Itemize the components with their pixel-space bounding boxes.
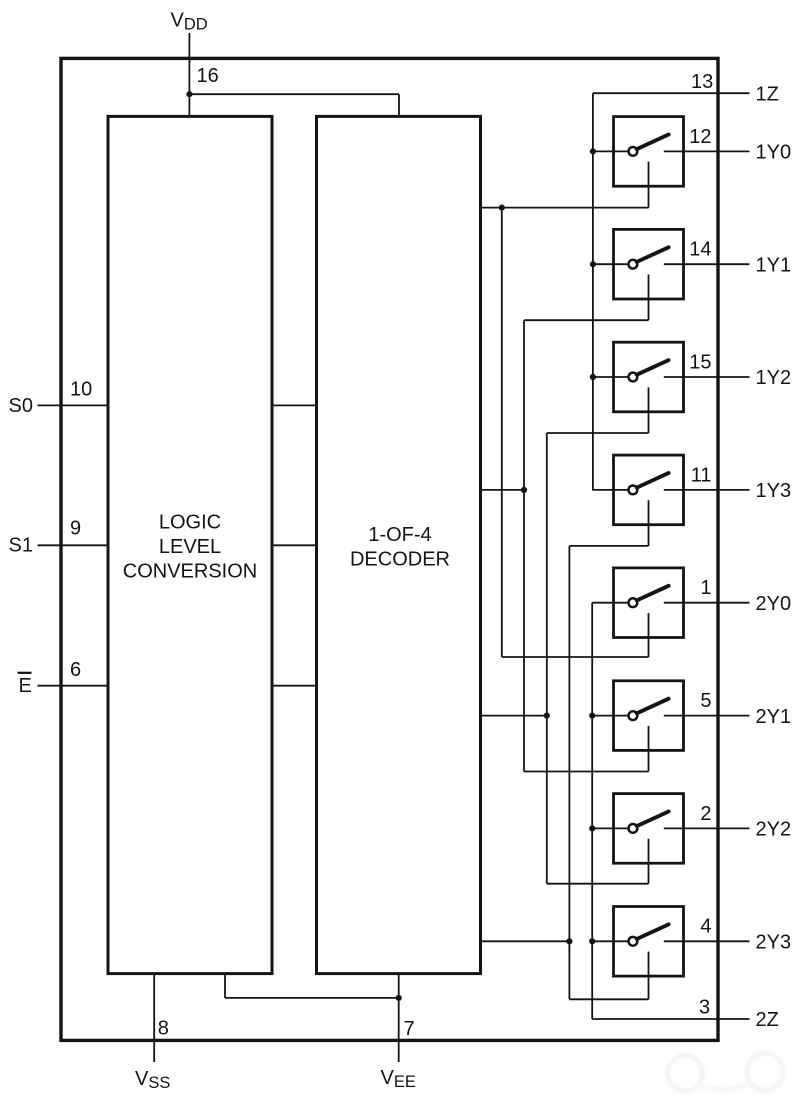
svg-text:16: 16 <box>197 65 219 87</box>
svg-text:2: 2 <box>700 803 711 825</box>
svg-text:2Y3: 2Y3 <box>756 932 792 954</box>
svg-text:10: 10 <box>70 379 92 401</box>
svg-text:1-OF-4: 1-OF-4 <box>368 524 431 546</box>
svg-text:5: 5 <box>700 690 711 712</box>
svg-text:14: 14 <box>689 239 711 261</box>
svg-text:1Y3: 1Y3 <box>756 480 792 502</box>
svg-text:3: 3 <box>699 997 710 1019</box>
svg-text:LOGIC: LOGIC <box>159 511 221 533</box>
svg-text:1Z: 1Z <box>756 84 779 106</box>
svg-text:9: 9 <box>70 518 81 540</box>
svg-text:LEVEL: LEVEL <box>159 536 221 558</box>
svg-text:15: 15 <box>689 351 711 373</box>
svg-text:8: 8 <box>158 1018 169 1040</box>
svg-text:DECODER: DECODER <box>350 548 450 570</box>
svg-text:CONVERSION: CONVERSION <box>123 560 257 582</box>
svg-text:7: 7 <box>404 1018 415 1040</box>
svg-text:1: 1 <box>700 577 711 599</box>
svg-text:2Y0: 2Y0 <box>756 593 792 615</box>
svg-text:12: 12 <box>689 126 711 148</box>
svg-text:2Y2: 2Y2 <box>756 819 792 841</box>
svg-text:S0: S0 <box>9 395 33 417</box>
svg-text:E: E <box>19 675 32 697</box>
svg-text:11: 11 <box>691 464 712 486</box>
svg-text:2Y1: 2Y1 <box>756 706 792 728</box>
svg-text:S1: S1 <box>9 535 33 557</box>
svg-text:2Z: 2Z <box>756 1009 779 1031</box>
svg-text:1Y1: 1Y1 <box>756 254 792 276</box>
svg-text:1Y0: 1Y0 <box>756 142 792 164</box>
svg-text:6: 6 <box>70 659 81 681</box>
svg-text:13: 13 <box>691 71 713 93</box>
svg-text:4: 4 <box>700 916 711 938</box>
svg-text:1Y2: 1Y2 <box>756 367 792 389</box>
